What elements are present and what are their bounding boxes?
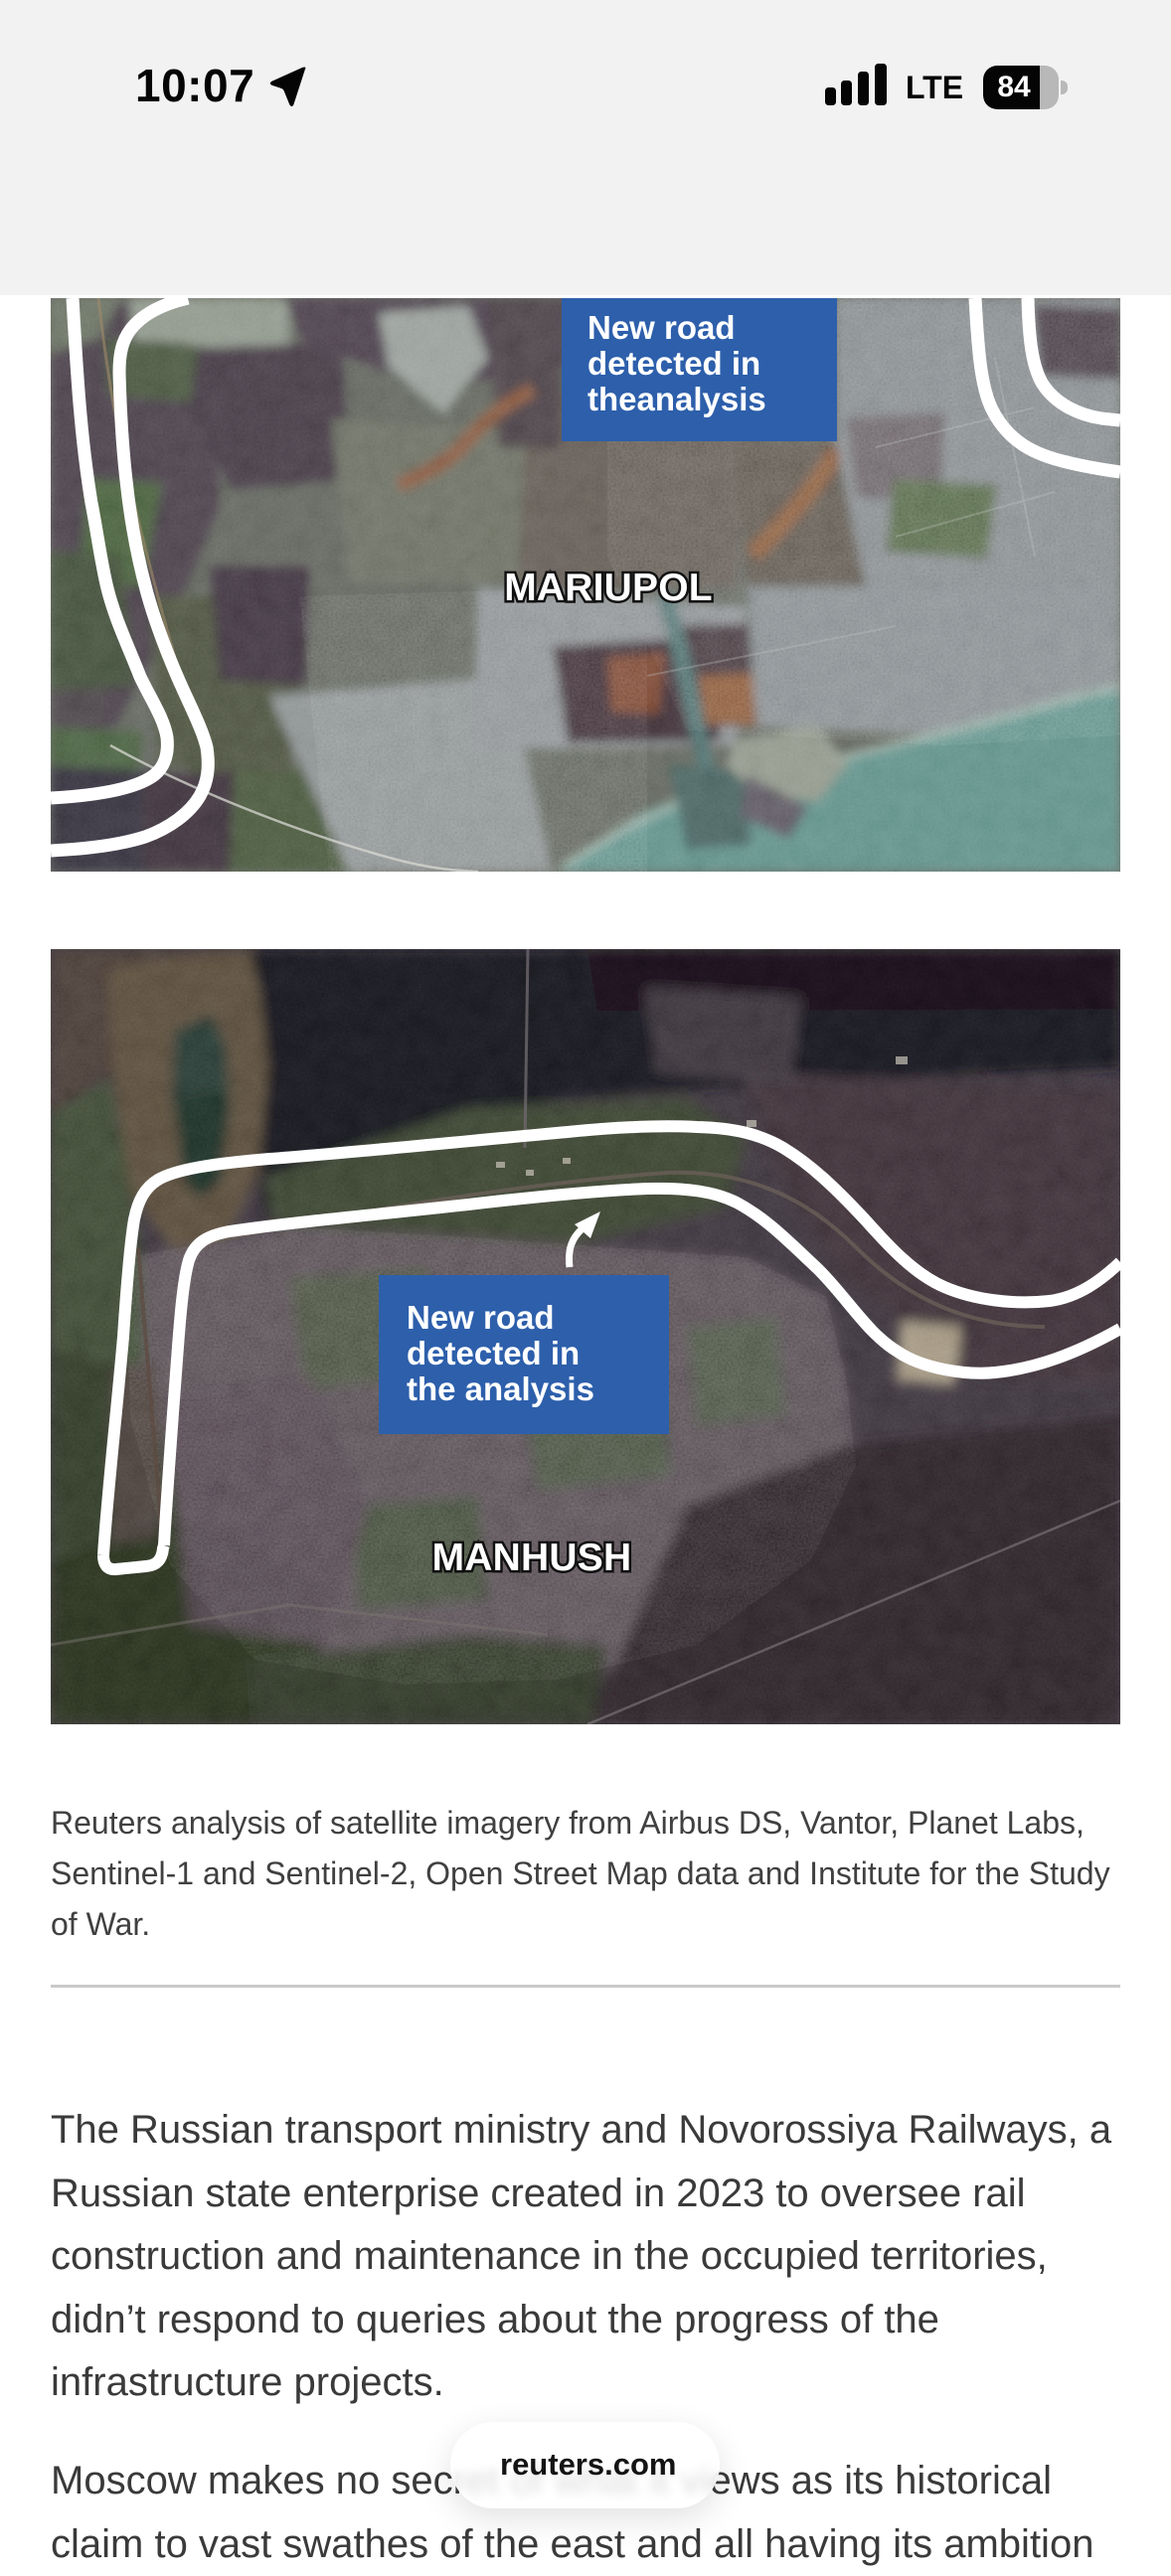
svg-text:New road: New road (587, 309, 736, 346)
svg-text:detected in: detected in (407, 1335, 580, 1371)
svg-text:MANHUSH: MANHUSH (432, 1536, 632, 1579)
svg-text:the analysis: the analysis (407, 1370, 594, 1407)
svg-text:detected in: detected in (587, 345, 760, 382)
svg-text:New road: New road (407, 1299, 555, 1336)
svg-text:theanalysis: theanalysis (587, 381, 766, 417)
svg-text:MARIUPOL: MARIUPOL (504, 566, 713, 609)
